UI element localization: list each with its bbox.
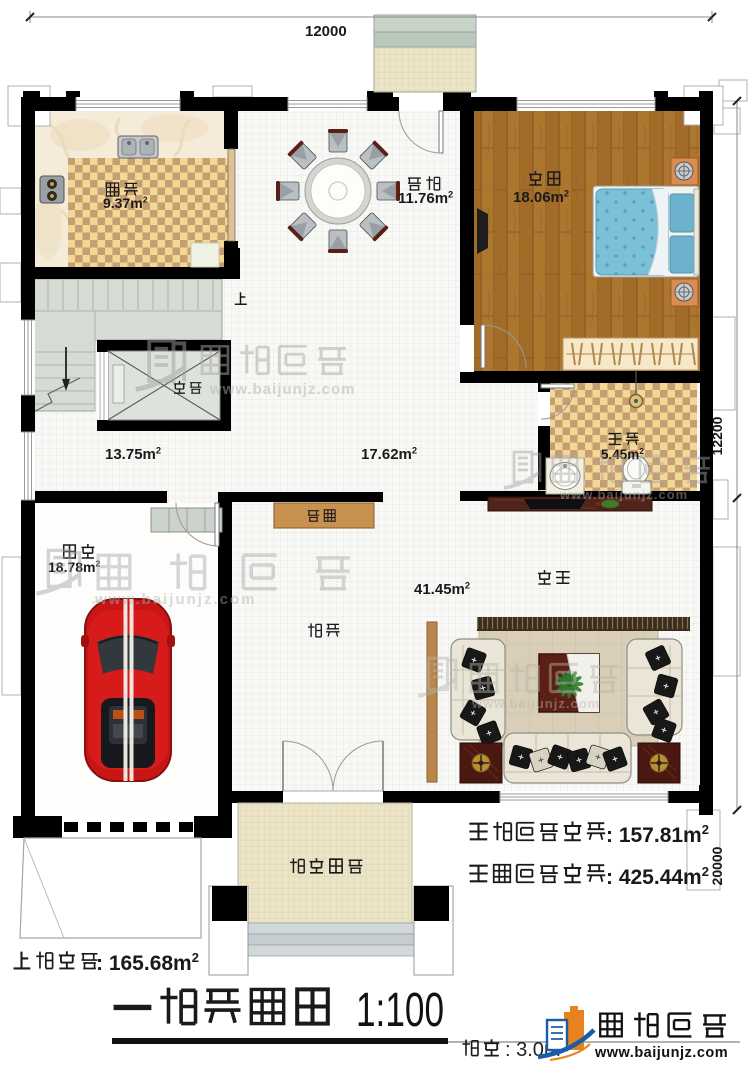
svg-text:www.baijunjz.com: www.baijunjz.com [471, 696, 600, 711]
svg-text:12000: 12000 [305, 23, 347, 40]
svg-text:: 425.44m2: : 425.44m2 [606, 864, 709, 889]
svg-text:www.baijunjz.com: www.baijunjz.com [559, 487, 688, 502]
svg-text:13.75m2: 13.75m2 [105, 445, 161, 463]
svg-text:20000: 20000 [709, 846, 725, 885]
svg-text:9.37m2: 9.37m2 [103, 195, 148, 211]
svg-text:www.baijunjz.com: www.baijunjz.com [209, 381, 355, 398]
svg-text:41.45m2: 41.45m2 [414, 580, 470, 598]
svg-text:17.62m2: 17.62m2 [361, 445, 417, 463]
svg-text:: 165.68m2: : 165.68m2 [96, 950, 199, 975]
svg-text:1:100: 1:100 [356, 984, 444, 1037]
svg-text:: 157.81m2: : 157.81m2 [606, 822, 709, 847]
svg-text:www.baijunjz.com: www.baijunjz.com [594, 1045, 728, 1061]
svg-text:11.76m2: 11.76m2 [398, 189, 453, 207]
svg-text:www.baijunjz.com: www.baijunjz.com [94, 591, 256, 608]
svg-text:18.06m2: 18.06m2 [513, 188, 569, 206]
svg-text:12200: 12200 [709, 416, 725, 455]
